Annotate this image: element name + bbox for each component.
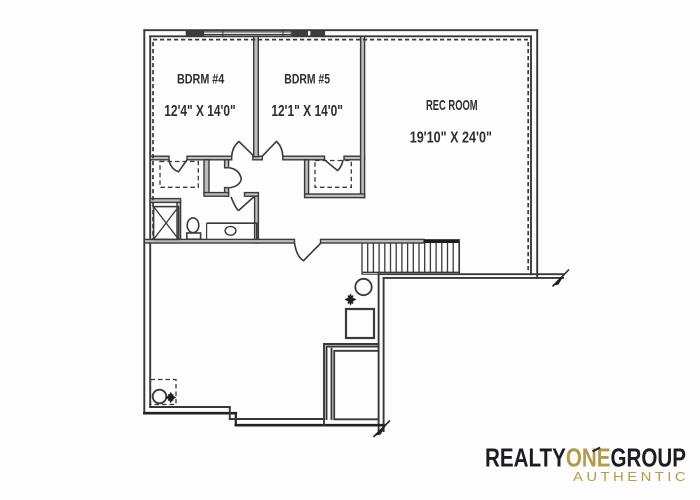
- svg-text:19'10" X 24'0": 19'10" X 24'0": [410, 130, 492, 147]
- svg-text:REC ROOM: REC ROOM: [426, 97, 478, 114]
- svg-text:12'1" X 14'0": 12'1" X 14'0": [271, 103, 343, 120]
- svg-text:BDRM #4: BDRM #4: [177, 71, 225, 86]
- svg-text:AUTHENTIC: AUTHENTIC: [573, 469, 689, 484]
- svg-text:REALTYONEGROUP: REALTYONEGROUP: [485, 443, 686, 473]
- svg-text:12'4" X 14'0": 12'4" X 14'0": [164, 103, 235, 120]
- svg-text:BDRM #5: BDRM #5: [284, 71, 330, 86]
